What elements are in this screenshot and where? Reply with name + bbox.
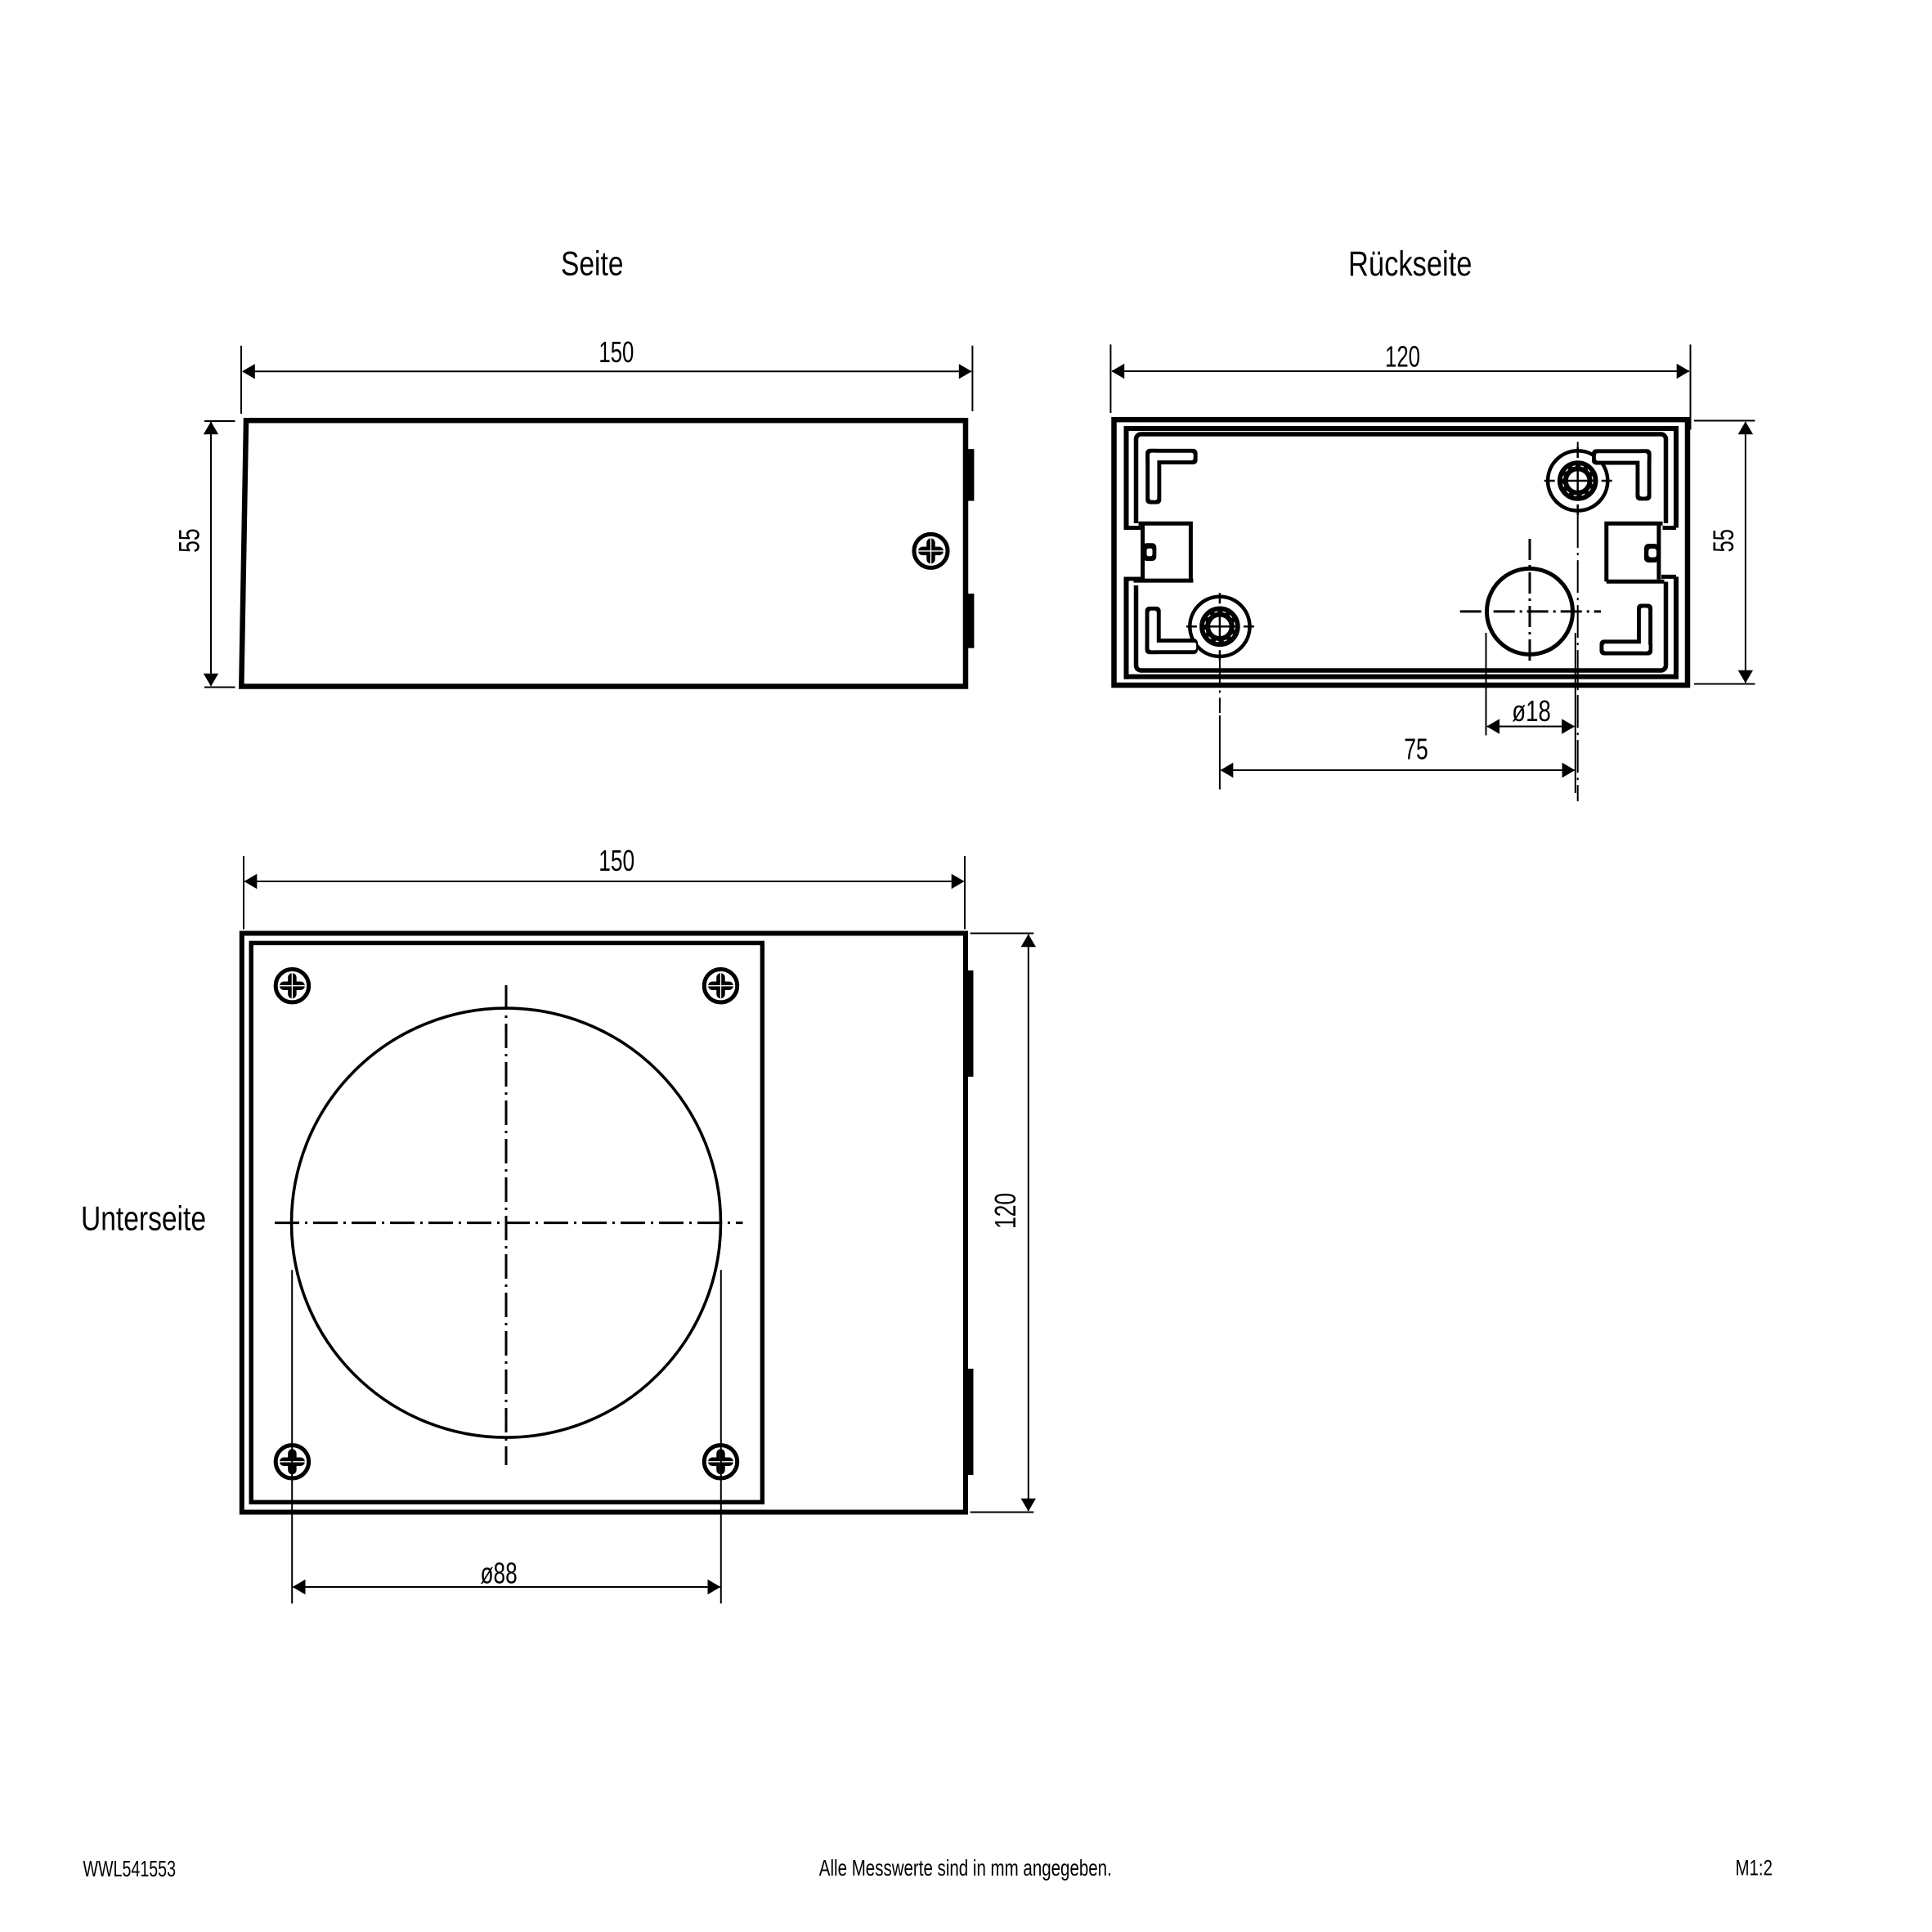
svg-text:WWL541553: WWL541553 bbox=[83, 1856, 177, 1881]
svg-text:Unterseite: Unterseite bbox=[81, 1199, 206, 1238]
svg-text:ø88: ø88 bbox=[481, 1557, 518, 1590]
svg-text:120: 120 bbox=[988, 1193, 1022, 1229]
svg-text:75: 75 bbox=[1404, 732, 1428, 765]
svg-text:ø18: ø18 bbox=[1512, 694, 1551, 728]
svg-text:120: 120 bbox=[1385, 340, 1420, 374]
svg-text:Alle Messwerte sind in mm ange: Alle Messwerte sind in mm angegeben. bbox=[819, 1855, 1112, 1880]
svg-text:Seite: Seite bbox=[561, 244, 624, 282]
svg-text:Rückseite: Rückseite bbox=[1348, 244, 1473, 284]
svg-text:M1:2: M1:2 bbox=[1736, 1856, 1773, 1880]
svg-text:150: 150 bbox=[598, 844, 634, 877]
svg-text:150: 150 bbox=[598, 335, 634, 369]
svg-text:55: 55 bbox=[174, 528, 206, 553]
svg-text:55: 55 bbox=[1708, 529, 1740, 553]
